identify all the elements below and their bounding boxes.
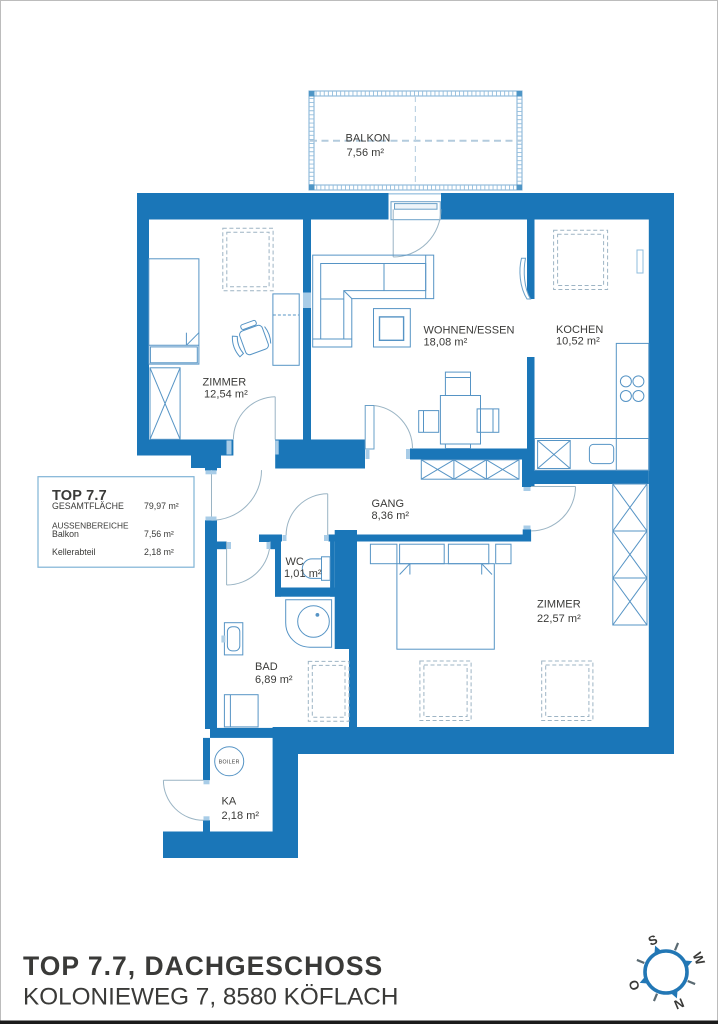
svg-text:KOCHEN: KOCHEN bbox=[556, 324, 603, 336]
svg-text:O: O bbox=[625, 978, 643, 993]
svg-text:GESAMTFLÄCHE: GESAMTFLÄCHE bbox=[52, 501, 124, 511]
svg-text:10,52 m²: 10,52 m² bbox=[556, 336, 600, 348]
svg-text:W: W bbox=[690, 950, 709, 968]
svg-text:12,54 m²: 12,54 m² bbox=[204, 389, 248, 401]
svg-text:7,56 m²: 7,56 m² bbox=[347, 147, 385, 159]
svg-text:BOILER: BOILER bbox=[219, 759, 240, 765]
svg-text:GANG: GANG bbox=[372, 498, 405, 510]
svg-text:WOHNEN/ESSEN: WOHNEN/ESSEN bbox=[424, 325, 515, 337]
svg-text:N: N bbox=[672, 995, 686, 1012]
svg-text:79,97 m²: 79,97 m² bbox=[144, 501, 179, 511]
svg-text:KOLONIEWEG 7, 8580 KÖFLACH: KOLONIEWEG 7, 8580 KÖFLACH bbox=[23, 984, 398, 1011]
svg-text:6,89 m²: 6,89 m² bbox=[255, 674, 293, 686]
svg-text:Balkon: Balkon bbox=[52, 529, 79, 539]
svg-text:TOP 7.7, DACHGESCHOSS: TOP 7.7, DACHGESCHOSS bbox=[23, 951, 383, 981]
svg-text:2,18 m²: 2,18 m² bbox=[222, 810, 260, 822]
svg-text:KA: KA bbox=[222, 796, 237, 808]
svg-text:BAD: BAD bbox=[255, 661, 278, 673]
svg-text:7,56 m²: 7,56 m² bbox=[144, 529, 174, 539]
svg-text:22,57 m²: 22,57 m² bbox=[537, 613, 581, 625]
svg-text:1,01 m²: 1,01 m² bbox=[284, 568, 322, 580]
svg-text:Kellerabteil: Kellerabteil bbox=[52, 547, 96, 557]
svg-text:ZIMMER: ZIMMER bbox=[537, 599, 581, 611]
svg-text:ZIMMER: ZIMMER bbox=[203, 377, 247, 389]
svg-text:S: S bbox=[646, 931, 660, 948]
svg-text:18,08 m²: 18,08 m² bbox=[424, 337, 468, 349]
svg-text:BALKON: BALKON bbox=[346, 133, 391, 145]
svg-text:2,18 m²: 2,18 m² bbox=[144, 547, 174, 557]
svg-text:8,36 m²: 8,36 m² bbox=[372, 510, 410, 522]
svg-text:WC: WC bbox=[286, 556, 304, 568]
